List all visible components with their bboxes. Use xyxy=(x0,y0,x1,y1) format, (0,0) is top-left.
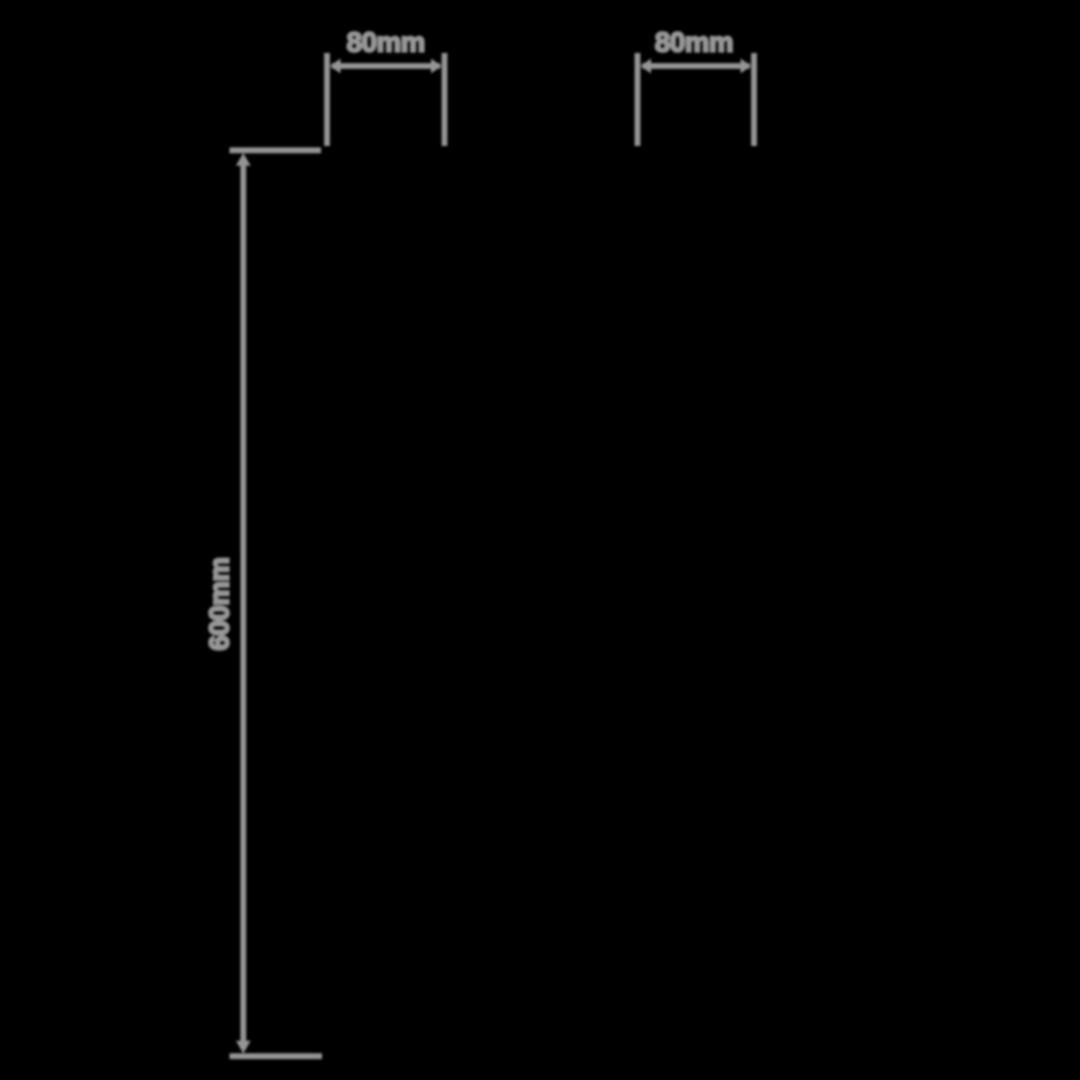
svg-text:80mm: 80mm xyxy=(347,27,425,58)
svg-text:80mm: 80mm xyxy=(655,27,733,58)
svg-text:600mm: 600mm xyxy=(204,557,235,650)
